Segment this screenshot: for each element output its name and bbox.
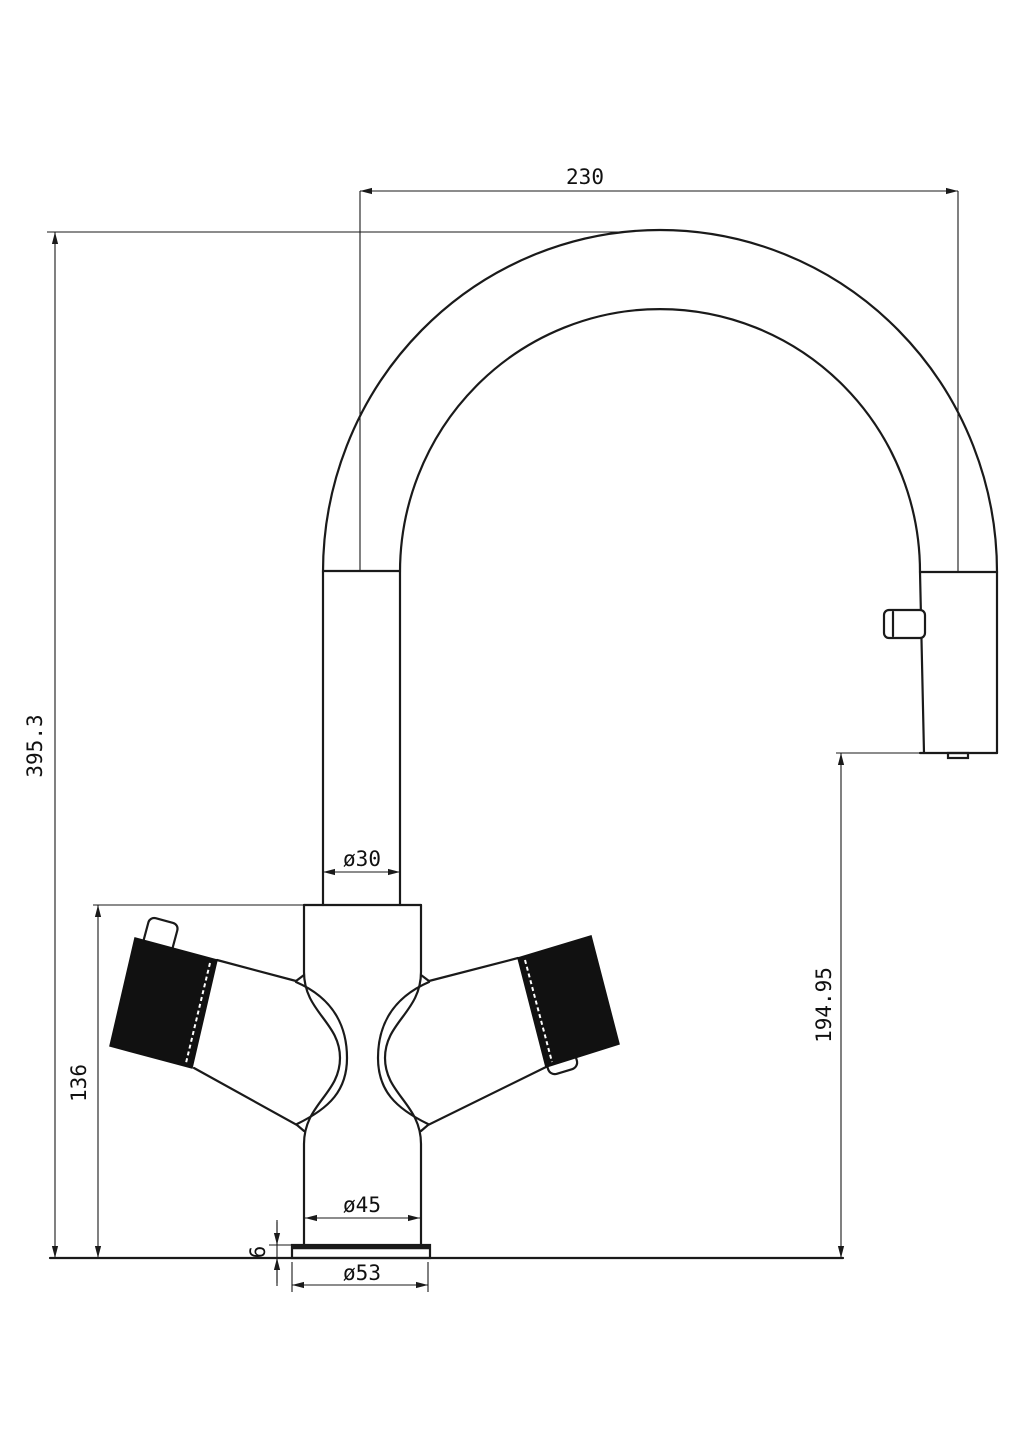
- faucet-technical-drawing: 230 395.3 ø30 136 194.95 ø45 6 ø53: [0, 0, 1024, 1449]
- right-handle-knob: [518, 936, 619, 1067]
- spray-head: [884, 572, 997, 758]
- label-plate-thickness: 6: [246, 1246, 270, 1259]
- body-left-edge: [304, 905, 340, 1245]
- label-spout-reach: 230: [566, 165, 604, 189]
- label-overall-height: 395.3: [23, 714, 47, 777]
- spray-button: [884, 610, 925, 638]
- technical-drawing-page: 230 395.3 ø30 136 194.95 ø45 6 ø53: [0, 0, 1024, 1449]
- spout-outer-arc: [323, 230, 997, 572]
- label-body-diameter: ø45: [343, 1193, 381, 1217]
- spray-nozzle: [948, 753, 968, 758]
- dimension-labels: 230 395.3 ø30 136 194.95 ø45 6 ø53: [23, 165, 836, 1285]
- left-handle-knob: [110, 938, 217, 1068]
- label-outlet-height: 194.95: [812, 967, 836, 1043]
- right-handle-lever: [378, 958, 546, 1131]
- dimension-lines: [47, 191, 958, 1292]
- spout-inner-arc: [400, 309, 920, 572]
- label-plate-diameter: ø53: [343, 1261, 381, 1285]
- body-right-edge: [385, 905, 421, 1245]
- left-handle-lever: [194, 960, 347, 1131]
- faucet-outline: [50, 230, 997, 1258]
- label-body-height: 136: [67, 1064, 91, 1102]
- label-tube-diameter: ø30: [343, 847, 381, 871]
